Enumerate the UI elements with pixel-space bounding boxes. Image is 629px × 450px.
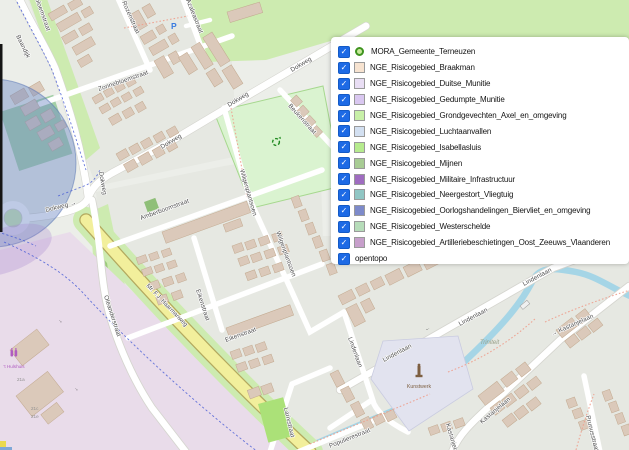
checkbox-checked[interactable]: ✓ [338, 125, 350, 137]
layer-color-swatch [354, 174, 365, 185]
legend-row-mora[interactable]: ✓ MORA_Gemeente_Terneuzen [338, 44, 629, 60]
checkbox-checked[interactable]: ✓ [338, 189, 350, 201]
layer-label: NGE_Risicogebied_Oorlogshandelingen_Bier… [370, 206, 591, 215]
area-label: Triniteit [480, 340, 500, 346]
layer-color-swatch [354, 110, 365, 121]
layer-label: opentopo [355, 254, 387, 263]
house-number: 21e [31, 414, 39, 419]
checkbox-checked[interactable]: ✓ [338, 110, 350, 122]
legend-row[interactable]: ✓ NGE_Risicogebied_Westerschelde [338, 219, 629, 235]
layer-label: NGE_Risicogebied_Luchtaanvallen [370, 127, 491, 136]
layer-label: NGE_Risicogebied_Braakman [370, 63, 475, 72]
house-number: 21a [17, 377, 25, 382]
legend-row[interactable]: ✓ NGE_Risicogebied_Grondgevechten_Axel_e… [338, 108, 629, 124]
layer-label: NGE_Risicogebied_Gedumpte_Munitie [370, 95, 505, 104]
checkbox-checked[interactable]: ✓ [338, 46, 350, 58]
legend-row-opentopo[interactable]: ✓ opentopo [338, 251, 629, 267]
legend-row[interactable]: ✓ NGE_Risicogebied_Braakman [338, 60, 629, 76]
house-number: 21c [31, 406, 39, 411]
layer-color-swatch [354, 205, 365, 216]
legend-row[interactable]: ✓ NGE_Risicogebied_Mijnen [338, 155, 629, 171]
parking-icon: P [171, 21, 177, 31]
checkbox-checked[interactable]: ✓ [338, 173, 350, 185]
checkbox-checked[interactable]: ✓ [338, 253, 350, 265]
layer-label: MORA_Gemeente_Terneuzen [371, 47, 475, 56]
checkbox-checked[interactable]: ✓ [338, 62, 350, 74]
legend-row[interactable]: ✓ NGE_Risicogebied_Isabellasluis [338, 139, 629, 155]
layer-color-swatch [354, 189, 365, 200]
point-marker-icon [355, 47, 364, 56]
legend-row[interactable]: ✓ NGE_Risicogebied_Gedumpte_Munitie [338, 92, 629, 108]
app-window: { "legend": { "check_glyph": "✓", "items… [0, 0, 629, 450]
monument-label: Kunstwerk [407, 384, 432, 390]
shop-label: 't Hulshuis [3, 364, 25, 369]
layer-color-swatch [354, 126, 365, 137]
layer-label: NGE_Risicogebied_Duitse_Munitie [370, 79, 490, 88]
layer-color-swatch [354, 221, 365, 232]
layer-label: NGE_Risicogebied_Neergestort_Vliegtuig [370, 190, 513, 199]
layer-color-swatch [354, 62, 365, 73]
legend-row[interactable]: ✓ NGE_Risicogebied_Neergestort_Vliegtuig [338, 187, 629, 203]
checkbox-checked[interactable]: ✓ [338, 157, 350, 169]
layer-label: NGE_Risicogebied_Westerschelde [370, 222, 490, 231]
legend-row[interactable]: ✓ NGE_Risicogebied_Luchtaanvallen [338, 123, 629, 139]
checkbox-checked[interactable]: ✓ [338, 78, 350, 90]
layer-color-swatch [354, 78, 365, 89]
legend-row[interactable]: ✓ NGE_Risicogebied_Duitse_Munitie [338, 76, 629, 92]
legend-row[interactable]: ✓ NGE_Risicogebied_Militaire_Infrastruct… [338, 171, 629, 187]
layer-color-swatch [354, 158, 365, 169]
checkbox-checked[interactable]: ✓ [338, 237, 350, 249]
layer-control-panel: ✓ MORA_Gemeente_Terneuzen ✓ NGE_Risicoge… [331, 37, 629, 264]
layer-label: NGE_Risicogebied_Isabellasluis [370, 143, 481, 152]
layer-color-swatch [354, 237, 365, 248]
layer-color-swatch [354, 94, 365, 105]
legend-row[interactable]: ✓ NGE_Risicogebied_Oorlogshandelingen_Bi… [338, 203, 629, 219]
checkbox-checked[interactable]: ✓ [338, 205, 350, 217]
map-edge-line [0, 44, 3, 232]
checkbox-checked[interactable]: ✓ [338, 141, 350, 153]
layer-label: NGE_Risicogebied_Mijnen [370, 159, 462, 168]
layer-label: NGE_Risicogebied_Militaire_Infrastructuu… [370, 175, 515, 184]
layer-color-swatch [354, 142, 365, 153]
layer-label: NGE_Risicogebied_Artilleriebeschietingen… [370, 238, 610, 247]
checkbox-checked[interactable]: ✓ [338, 94, 350, 106]
layer-label: NGE_Risicogebied_Grondgevechten_Axel_en_… [370, 111, 567, 120]
checkbox-checked[interactable]: ✓ [338, 221, 350, 233]
legend-row[interactable]: ✓ NGE_Risicogebied_Artilleriebeschieting… [338, 235, 629, 251]
